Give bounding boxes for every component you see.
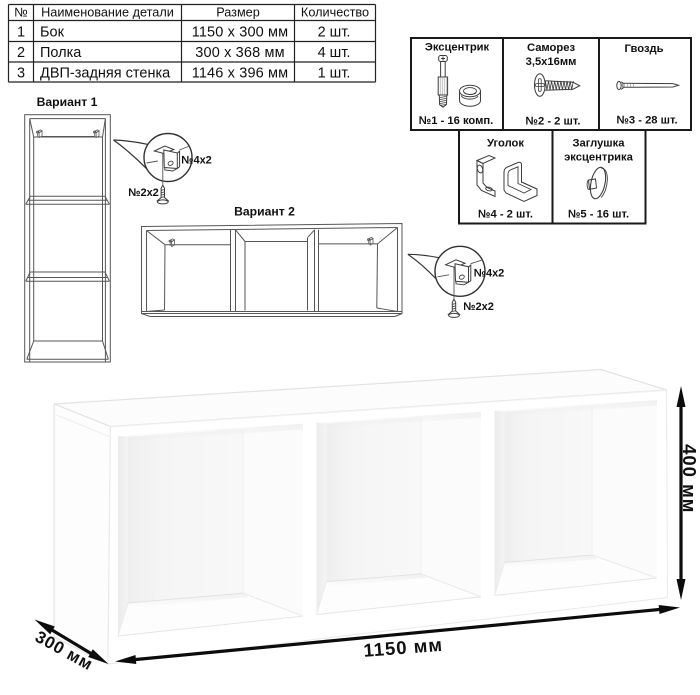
svg-text:3,5х16мм: 3,5х16мм: [526, 56, 577, 68]
svg-text:Гвоздь: Гвоздь: [624, 43, 663, 55]
svg-text:2: 2: [17, 45, 25, 61]
svg-text:№: №: [14, 6, 28, 20]
svg-text:Количество: Количество: [301, 6, 369, 20]
svg-text:№1 - 16 комп.: №1 - 16 комп.: [419, 115, 493, 127]
svg-text:1146 x 396 мм: 1146 x 396 мм: [192, 66, 289, 82]
svg-text:№4х2: №4х2: [181, 155, 212, 167]
svg-text:№2х2: №2х2: [128, 187, 159, 199]
svg-text:3: 3: [17, 66, 25, 82]
svg-text:400 мм: 400 мм: [679, 444, 700, 513]
svg-text:№3 - 28 шт.: №3 - 28 шт.: [616, 115, 677, 127]
svg-text:Заглушка: Заглушка: [573, 138, 626, 150]
svg-text:ДВП-задняя стенка: ДВП-задняя стенка: [40, 66, 171, 82]
svg-text:2 шт.: 2 шт.: [318, 25, 351, 41]
svg-text:Полка: Полка: [40, 45, 82, 61]
svg-text:Эксцентрик: Эксцентрик: [425, 42, 490, 54]
svg-text:1: 1: [17, 25, 25, 41]
svg-text:4 шт.: 4 шт.: [318, 45, 351, 61]
svg-text:1 шт.: 1 шт.: [318, 66, 351, 82]
svg-text:Уголок: Уголок: [487, 138, 524, 150]
svg-text:Наименование детали: Наименование детали: [41, 6, 174, 20]
svg-text:Вариант 2: Вариант 2: [234, 205, 295, 219]
svg-text:№5 - 16 шт.: №5 - 16 шт.: [568, 209, 629, 221]
svg-text:№4х2: №4х2: [474, 267, 505, 279]
svg-text:Бок: Бок: [40, 25, 65, 41]
svg-text:№2 - 2 шт.: №2 - 2 шт.: [526, 116, 581, 128]
svg-text:эксцентрика: эксцентрика: [564, 152, 633, 164]
svg-text:Саморез: Саморез: [527, 42, 575, 54]
svg-text:1150 x 300 мм: 1150 x 300 мм: [192, 25, 289, 41]
svg-text:300 x 368 мм: 300 x 368 мм: [195, 45, 284, 61]
svg-text:№4 - 2 шт.: №4 - 2 шт.: [478, 209, 533, 221]
svg-text:Вариант 1: Вариант 1: [37, 95, 98, 109]
svg-text:Размер: Размер: [216, 6, 260, 20]
svg-text:№2х2: №2х2: [463, 301, 494, 313]
